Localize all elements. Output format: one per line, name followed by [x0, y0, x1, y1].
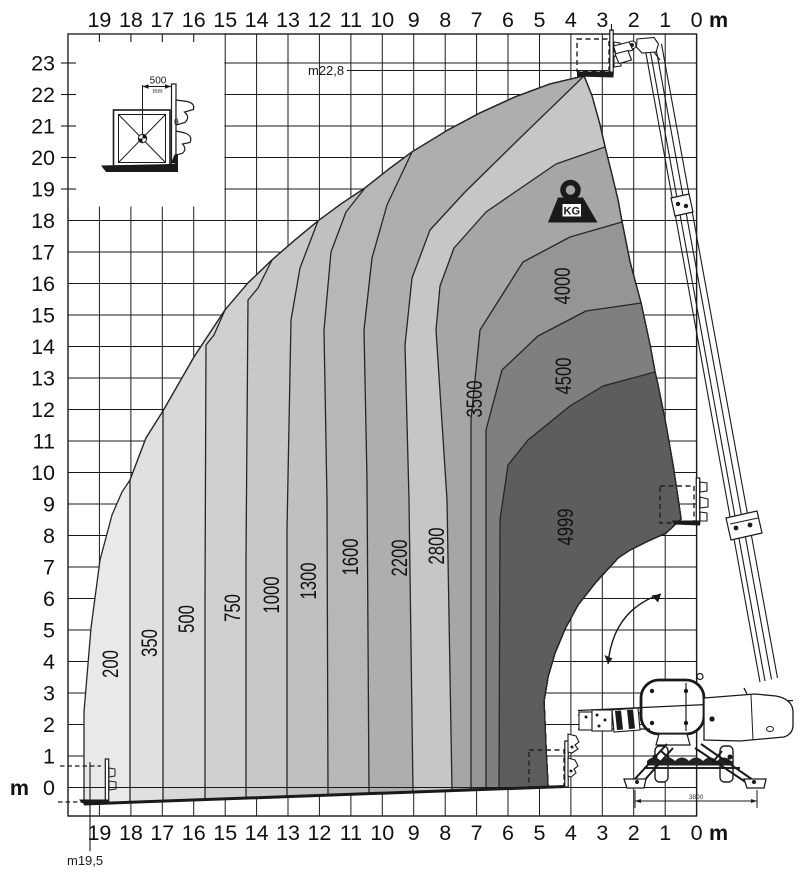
svg-text:23: 23	[31, 52, 55, 76]
svg-text:7: 7	[471, 821, 483, 845]
svg-text:m19,5: m19,5	[67, 853, 103, 868]
svg-text:2: 2	[43, 713, 55, 737]
svg-text:3500: 3500	[462, 381, 487, 418]
svg-text:17: 17	[31, 241, 55, 265]
svg-text:0: 0	[43, 776, 55, 800]
svg-text:16: 16	[182, 8, 206, 32]
svg-text:6: 6	[43, 587, 55, 611]
svg-text:12: 12	[307, 821, 331, 845]
svg-text:12: 12	[31, 398, 55, 422]
svg-text:3800: 3800	[689, 794, 704, 801]
svg-text:mm: mm	[153, 89, 163, 95]
svg-text:500: 500	[174, 605, 199, 633]
svg-text:200: 200	[98, 650, 123, 678]
svg-text:2: 2	[628, 821, 640, 845]
svg-text:1: 1	[659, 821, 671, 845]
svg-text:18: 18	[119, 8, 143, 32]
svg-text:3: 3	[596, 821, 608, 845]
svg-text:m: m	[709, 8, 728, 32]
svg-text:2200: 2200	[387, 540, 412, 577]
svg-text:10: 10	[370, 821, 394, 845]
svg-text:10: 10	[31, 461, 55, 485]
svg-text:9: 9	[408, 821, 420, 845]
svg-text:500: 500	[150, 76, 167, 87]
svg-text:4: 4	[565, 821, 577, 845]
svg-text:15: 15	[31, 304, 55, 328]
svg-text:m: m	[10, 776, 29, 800]
svg-text:22: 22	[31, 83, 55, 107]
svg-text:13: 13	[31, 367, 55, 391]
svg-text:14: 14	[245, 8, 269, 32]
svg-text:10: 10	[370, 8, 394, 32]
svg-text:20: 20	[31, 146, 55, 170]
svg-text:8: 8	[439, 8, 451, 32]
svg-text:9: 9	[43, 493, 55, 517]
svg-text:14: 14	[245, 821, 269, 845]
svg-text:4: 4	[43, 650, 55, 674]
svg-text:19: 19	[87, 821, 111, 845]
svg-text:15: 15	[213, 821, 237, 845]
svg-text:4999: 4999	[553, 509, 578, 546]
svg-text:7: 7	[43, 556, 55, 580]
svg-text:18: 18	[119, 821, 143, 845]
svg-text:19: 19	[87, 8, 111, 32]
svg-text:6: 6	[502, 821, 514, 845]
svg-text:13: 13	[276, 821, 300, 845]
svg-text:1000: 1000	[259, 577, 284, 614]
svg-text:17: 17	[150, 821, 174, 845]
svg-text:1: 1	[659, 8, 671, 32]
svg-text:750: 750	[220, 594, 245, 622]
svg-text:350: 350	[137, 629, 162, 657]
svg-text:4: 4	[565, 8, 577, 32]
svg-text:11: 11	[340, 8, 362, 32]
svg-text:7: 7	[471, 8, 483, 32]
svg-text:m22,8: m22,8	[308, 63, 344, 78]
svg-text:m: m	[709, 821, 728, 845]
svg-text:9: 9	[408, 8, 420, 32]
svg-text:8: 8	[43, 524, 55, 548]
svg-text:11: 11	[33, 430, 55, 454]
svg-text:3: 3	[596, 8, 608, 32]
svg-text:2: 2	[628, 8, 640, 32]
svg-text:16: 16	[31, 272, 55, 296]
svg-text:18: 18	[31, 209, 55, 233]
svg-text:5: 5	[43, 619, 55, 643]
svg-text:6: 6	[502, 8, 514, 32]
svg-text:KG: KG	[564, 206, 581, 218]
svg-text:12: 12	[307, 8, 331, 32]
svg-text:0: 0	[691, 821, 703, 845]
svg-text:19: 19	[31, 178, 55, 202]
svg-text:15: 15	[213, 8, 237, 32]
svg-text:16: 16	[182, 821, 206, 845]
svg-text:0: 0	[691, 8, 703, 32]
svg-text:4500: 4500	[551, 358, 576, 395]
svg-text:8: 8	[439, 821, 451, 845]
svg-text:3: 3	[43, 682, 55, 706]
svg-text:14: 14	[31, 335, 55, 359]
svg-text:5: 5	[534, 821, 546, 845]
svg-text:17: 17	[150, 8, 174, 32]
svg-text:θ: θ	[174, 117, 179, 127]
svg-text:2800: 2800	[424, 528, 449, 565]
svg-text:11: 11	[340, 821, 362, 845]
svg-text:21: 21	[31, 115, 55, 139]
svg-text:1: 1	[43, 745, 55, 769]
svg-text:1600: 1600	[338, 539, 363, 576]
svg-text:1300: 1300	[296, 563, 321, 600]
svg-text:13: 13	[276, 8, 300, 32]
svg-text:4000: 4000	[550, 268, 575, 305]
svg-text:5: 5	[534, 8, 546, 32]
